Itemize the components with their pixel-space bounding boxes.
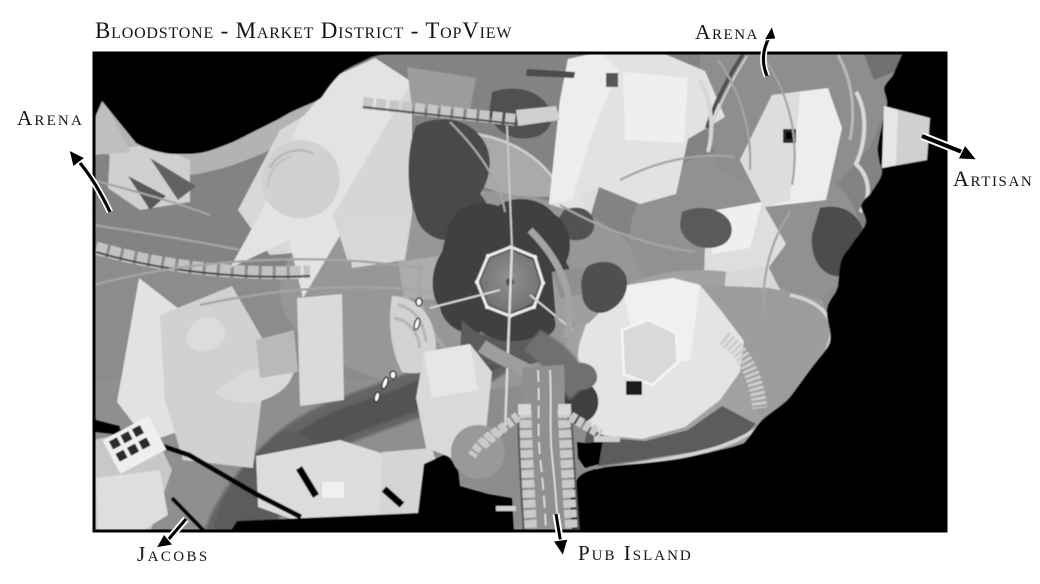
svg-text:Arena: Arena bbox=[17, 106, 84, 130]
svg-text:Bloodstone - Market District -: Bloodstone - Market District - TopView bbox=[95, 18, 512, 43]
svg-text:Arena: Arena bbox=[695, 20, 759, 44]
svg-text:Pub Island: Pub Island bbox=[578, 541, 693, 565]
svg-text:Jacobs: Jacobs bbox=[137, 542, 210, 566]
svg-text:Artisan: Artisan bbox=[953, 166, 1033, 191]
